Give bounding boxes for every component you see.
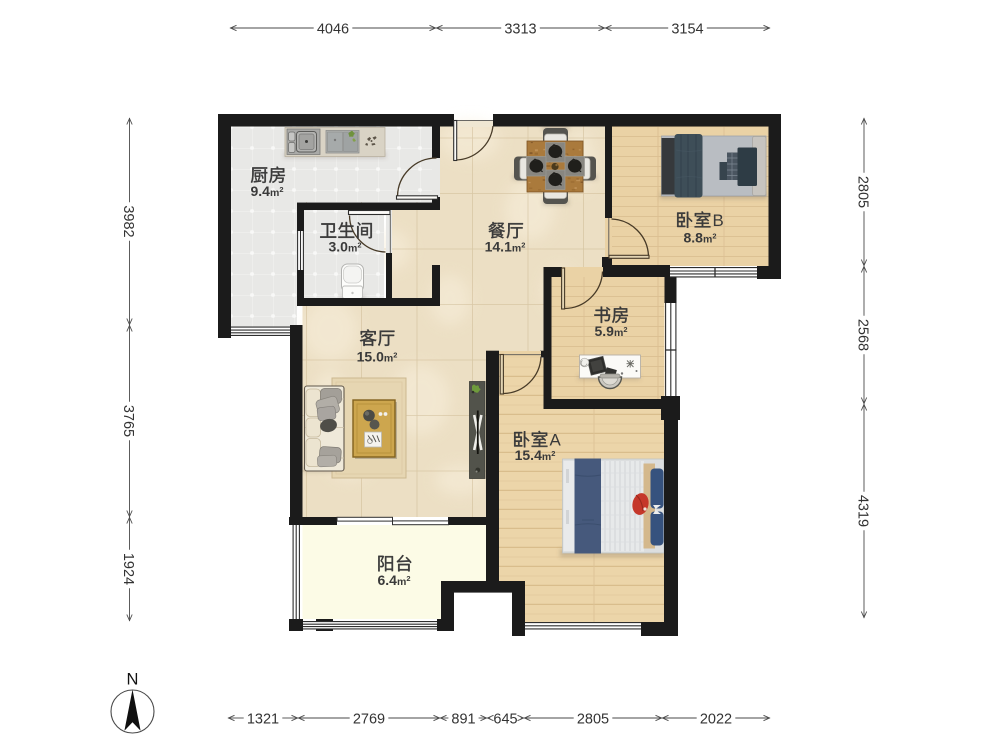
svg-text:N: N <box>127 671 139 689</box>
svg-text:3154: 3154 <box>671 21 703 37</box>
svg-text:4046: 4046 <box>317 21 349 37</box>
svg-text:1924: 1924 <box>120 553 136 585</box>
svg-text:2568: 2568 <box>855 319 871 351</box>
svg-text:2805: 2805 <box>577 711 609 727</box>
svg-text:891: 891 <box>451 711 475 727</box>
svg-text:645: 645 <box>493 711 517 727</box>
svg-text:4319: 4319 <box>855 495 871 527</box>
svg-text:A: A <box>550 430 562 449</box>
svg-text:2805: 2805 <box>855 176 871 208</box>
svg-text:2769: 2769 <box>353 711 385 727</box>
svg-text:5.9m2: 5.9m2 <box>595 323 628 339</box>
svg-text:1321: 1321 <box>247 711 279 727</box>
svg-text:9.4m2: 9.4m2 <box>251 183 284 199</box>
svg-text:3313: 3313 <box>504 21 536 37</box>
svg-text:8.8m2: 8.8m2 <box>684 230 717 246</box>
svg-text:3765: 3765 <box>120 405 136 437</box>
svg-text:6.4m2: 6.4m2 <box>378 572 411 588</box>
svg-text:3.0m2: 3.0m2 <box>329 239 362 255</box>
svg-text:3982: 3982 <box>120 205 136 237</box>
svg-text:B: B <box>713 211 724 230</box>
svg-text:2022: 2022 <box>700 711 732 727</box>
